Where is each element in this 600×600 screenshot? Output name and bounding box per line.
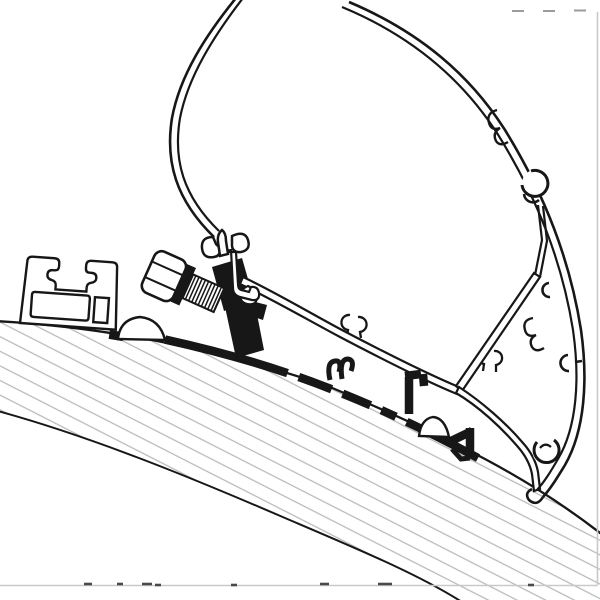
strut-prong-right [494,351,502,372]
screw-cap-dome-right [419,417,449,437]
screw-cap-dome-left [118,317,165,340]
rail-hook-left [329,361,340,380]
shell-upper-hook [488,110,508,144]
rail-hook-pair [329,359,353,380]
panel-grip-clip-shape [405,374,424,414]
mounting-bolt [139,249,228,321]
claw-middle-prong [218,230,228,256]
strut-side-hook [524,318,544,350]
awning-adapter-cross-section-diagram [0,0,600,600]
top-dash-marks [512,11,586,12]
cassette-inner-strut [456,273,540,391]
claw-right-hook [232,234,249,252]
shell-front-edge-inner [178,0,243,231]
rail-hook-right [341,359,352,379]
shell-inner-hook-1 [542,283,550,297]
rain-gutter-profile [20,256,120,330]
diagram-page [0,0,600,600]
clamp-bracket [212,258,267,358]
panel-grip-clip [405,374,424,414]
shell-inner-hook-2 [560,355,582,371]
gutter-profile-outline [20,256,120,330]
vehicle-roof [0,321,600,600]
roof-hatching [0,321,600,600]
panel-prong-right [358,317,367,338]
